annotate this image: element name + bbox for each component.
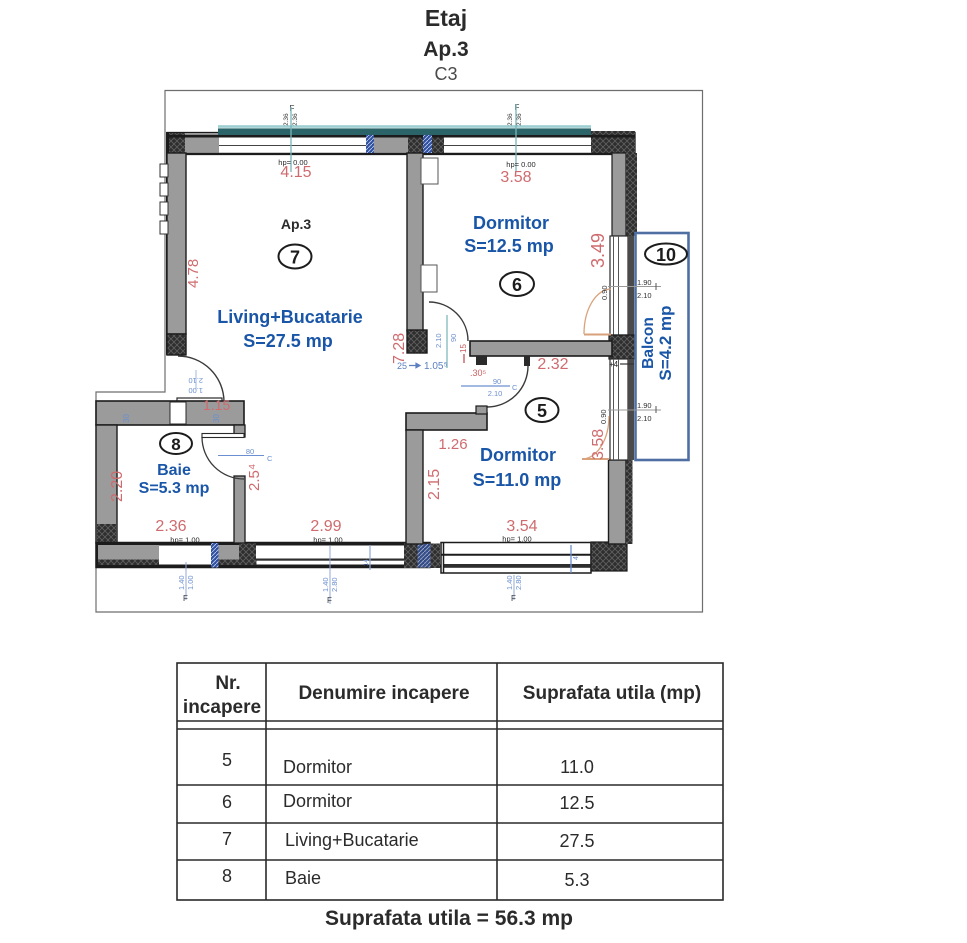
svg-text:2.80: 2.80 <box>514 575 523 590</box>
svg-text:Ap.3: Ap.3 <box>281 216 312 232</box>
svg-text:Living+Bucatarie: Living+Bucatarie <box>217 307 363 327</box>
svg-text:Denumire incapere: Denumire incapere <box>298 683 469 704</box>
svg-text:+4: +4 <box>609 360 619 369</box>
svg-text:10: 10 <box>656 245 676 265</box>
svg-text:2.36: 2.36 <box>292 113 299 126</box>
svg-text:6: 6 <box>222 792 232 812</box>
svg-text:27.5: 27.5 <box>559 831 594 851</box>
svg-text:2.36: 2.36 <box>516 113 523 126</box>
svg-text:.30⁵: .30⁵ <box>470 368 487 378</box>
svg-text:0.90: 0.90 <box>600 285 609 300</box>
svg-text:1.90: 1.90 <box>637 401 652 410</box>
svg-text:2.36: 2.36 <box>155 518 186 535</box>
svg-text:2.10: 2.10 <box>434 333 443 348</box>
svg-text:Living+Bucatarie: Living+Bucatarie <box>285 830 419 850</box>
svg-text:hp= 0.00: hp= 0.00 <box>278 158 307 167</box>
svg-text:5: 5 <box>537 401 547 421</box>
svg-text:2.32: 2.32 <box>537 356 568 373</box>
svg-text:1.26: 1.26 <box>438 436 467 453</box>
svg-text:1.90: 1.90 <box>637 278 652 287</box>
svg-text:1.40: 1.40 <box>177 575 186 590</box>
svg-text:2.10: 2.10 <box>488 389 503 398</box>
svg-text:6: 6 <box>512 275 522 295</box>
svg-text:1.15: 1.15 <box>203 397 230 413</box>
svg-text:11.0: 11.0 <box>560 757 594 777</box>
svg-text:F: F <box>183 594 188 603</box>
svg-text:S=12.5 mp: S=12.5 mp <box>464 236 554 256</box>
svg-text:1.05⁵: 1.05⁵ <box>424 361 448 372</box>
svg-text:1.40: 1.40 <box>505 575 514 590</box>
svg-text:C: C <box>512 383 518 392</box>
svg-text:C3: C3 <box>434 64 457 84</box>
svg-text:90: 90 <box>449 334 458 342</box>
svg-text:Dormitor: Dormitor <box>480 445 556 465</box>
svg-text:F: F <box>327 596 332 605</box>
svg-text:Dormitor: Dormitor <box>473 213 549 233</box>
svg-text:80: 80 <box>246 447 254 456</box>
svg-text:hp= 0.00: hp= 0.00 <box>506 160 535 169</box>
svg-text:3.49: 3.49 <box>588 233 608 268</box>
svg-text:S=5.3 mp: S=5.3 mp <box>139 480 210 497</box>
svg-text:7: 7 <box>222 829 232 849</box>
svg-text:15: 15 <box>459 344 468 353</box>
svg-text:S=4.2 mp: S=4.2 mp <box>656 305 675 380</box>
svg-text:hp= 1.00: hp= 1.00 <box>502 535 531 544</box>
svg-text:F: F <box>290 104 295 113</box>
svg-text:Baie: Baie <box>285 868 321 888</box>
svg-text:2.10: 2.10 <box>637 291 652 300</box>
svg-text:Suprafata utila (mp): Suprafata utila (mp) <box>523 683 701 704</box>
svg-text:4: 4 <box>573 556 580 560</box>
svg-text:7: 7 <box>290 248 300 268</box>
svg-text:7.28: 7.28 <box>391 333 408 364</box>
svg-text:Etaj: Etaj <box>425 5 467 31</box>
svg-text:Dormitor: Dormitor <box>283 757 352 777</box>
svg-text:incapere: incapere <box>183 697 261 718</box>
svg-text:Suprafata utila = 56.3 mp: Suprafata utila = 56.3 mp <box>325 907 573 930</box>
svg-text:Dormitor: Dormitor <box>283 791 352 811</box>
svg-text:30: 30 <box>122 414 131 423</box>
svg-text:30: 30 <box>212 414 221 423</box>
svg-text:8: 8 <box>222 866 232 886</box>
svg-text:2.80: 2.80 <box>330 577 339 592</box>
svg-text:hp= 1.00: hp= 1.00 <box>170 536 199 545</box>
svg-text:3.58: 3.58 <box>500 169 531 186</box>
svg-text:2.15: 2.15 <box>426 469 443 500</box>
svg-text:S=11.0 mp: S=11.0 mp <box>473 470 562 490</box>
svg-text:hp= 1.00: hp= 1.00 <box>313 536 342 545</box>
svg-text:S=27.5 mp: S=27.5 mp <box>243 331 333 351</box>
svg-text:2.36: 2.36 <box>507 113 514 126</box>
svg-text:Balcon: Balcon <box>640 317 657 369</box>
svg-text:F: F <box>511 594 516 603</box>
svg-text:3.54: 3.54 <box>506 518 537 535</box>
svg-text:4.78: 4.78 <box>185 259 202 288</box>
svg-text:3.58: 3.58 <box>590 429 607 460</box>
svg-text:90: 90 <box>493 377 501 386</box>
svg-text:5: 5 <box>222 750 232 770</box>
svg-text:C: C <box>267 454 273 463</box>
svg-text:12.5: 12.5 <box>559 793 594 813</box>
svg-text:1.40: 1.40 <box>321 577 330 592</box>
svg-text:Nr.: Nr. <box>215 673 240 694</box>
svg-text:Baie: Baie <box>157 462 191 479</box>
svg-text:8: 8 <box>171 435 180 454</box>
svg-text:2.36: 2.36 <box>283 113 290 126</box>
svg-text:2.20: 2.20 <box>109 471 126 502</box>
svg-text:Ap.3: Ap.3 <box>423 38 469 61</box>
svg-text:0.90: 0.90 <box>599 409 608 424</box>
svg-text:5.3: 5.3 <box>564 870 589 890</box>
svg-text:2.5⁴: 2.5⁴ <box>246 464 263 491</box>
svg-text:1.00: 1.00 <box>186 575 195 590</box>
svg-text:14: 14 <box>364 559 370 566</box>
svg-text:F: F <box>515 103 520 112</box>
svg-text:2.10: 2.10 <box>637 414 652 423</box>
svg-text:2.99: 2.99 <box>310 518 341 535</box>
